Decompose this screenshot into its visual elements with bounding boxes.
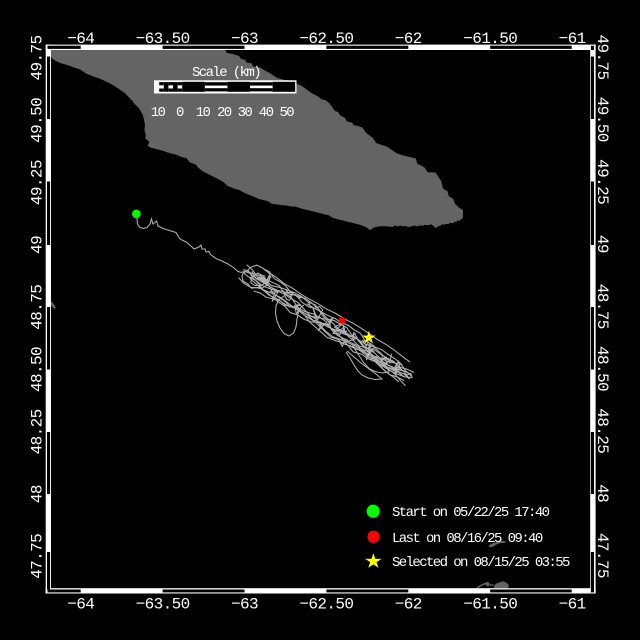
svg-text:48.25: 48.25 (593, 408, 611, 453)
svg-text:49.50: 49.50 (593, 97, 611, 142)
svg-text:20: 20 (217, 105, 232, 121)
svg-text:−64: −64 (67, 30, 94, 48)
svg-text:−63: −63 (231, 596, 258, 614)
svg-text:50: 50 (279, 105, 294, 121)
svg-text:49.25: 49.25 (593, 159, 611, 204)
svg-text:40: 40 (259, 105, 274, 121)
svg-text:−63.50: −63.50 (136, 30, 190, 48)
svg-text:48: 48 (593, 484, 611, 502)
svg-text:49: 49 (29, 236, 47, 254)
svg-text:48.50: 48.50 (29, 347, 47, 392)
svg-text:49.25: 49.25 (29, 160, 47, 205)
svg-text:48.25: 48.25 (29, 409, 47, 454)
svg-text:47.75: 47.75 (29, 534, 47, 579)
svg-text:0: 0 (176, 105, 184, 121)
svg-text:Scale (km): Scale (km) (192, 65, 260, 81)
svg-text:48.75: 48.75 (593, 284, 611, 329)
svg-text:47.75: 47.75 (593, 533, 611, 578)
svg-text:−61: −61 (559, 596, 586, 614)
svg-text:−62.50: −62.50 (299, 596, 353, 614)
svg-text:10: 10 (151, 105, 166, 121)
svg-text:−63.50: −63.50 (136, 596, 190, 614)
svg-text:−62.50: −62.50 (299, 30, 353, 48)
svg-text:49.75: 49.75 (593, 34, 611, 79)
svg-text:Selected on 08/15/25 03:55: Selected on 08/15/25 03:55 (392, 555, 570, 571)
svg-text:30: 30 (238, 105, 253, 121)
svg-text:49: 49 (593, 235, 611, 253)
svg-text:−62: −62 (395, 30, 422, 48)
svg-text:−62: −62 (395, 596, 422, 614)
svg-text:10: 10 (196, 105, 211, 121)
svg-text:−61.50: −61.50 (463, 30, 517, 48)
svg-text:−61.50: −61.50 (463, 596, 517, 614)
svg-text:−63: −63 (231, 30, 258, 48)
svg-text:−61: −61 (559, 30, 586, 48)
svg-text:49.75: 49.75 (29, 35, 47, 80)
svg-text:Last on 08/16/25 09:40: Last on 08/16/25 09:40 (392, 531, 543, 547)
svg-text:Start on 05/22/25 17:40: Start on 05/22/25 17:40 (392, 505, 550, 521)
svg-text:49.50: 49.50 (29, 98, 47, 143)
svg-text:48: 48 (29, 485, 47, 503)
svg-text:48.50: 48.50 (593, 346, 611, 391)
svg-text:−64: −64 (67, 596, 94, 614)
svg-text:48.75: 48.75 (29, 285, 47, 330)
